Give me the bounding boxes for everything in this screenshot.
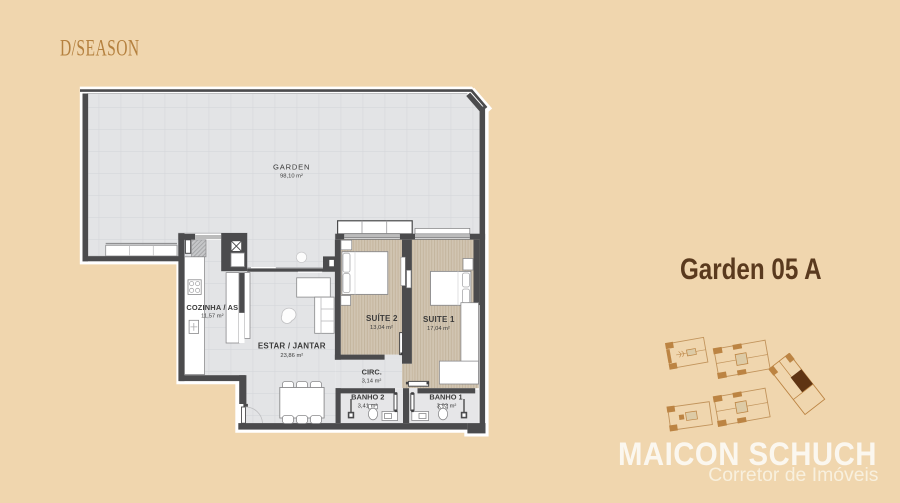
svg-text:13,04 m²: 13,04 m² — [370, 325, 393, 331]
svg-text:ESTAR / JANTAR: ESTAR / JANTAR — [258, 341, 326, 350]
svg-text:GARDEN: GARDEN — [273, 163, 310, 172]
svg-text:CIRC.: CIRC. — [362, 367, 382, 376]
svg-text:3,92 m²: 3,92 m² — [437, 403, 457, 409]
svg-text:BANHO 2: BANHO 2 — [351, 392, 384, 401]
svg-text:23,86 m²: 23,86 m² — [280, 353, 303, 359]
svg-text:BANHO 1: BANHO 1 — [429, 392, 462, 401]
svg-text:SUÍTE 2: SUÍTE 2 — [366, 314, 398, 323]
svg-text:3,41 m²: 3,41 m² — [358, 403, 378, 409]
svg-text:COZINHA / AS: COZINHA / AS — [186, 303, 238, 312]
svg-text:98,10 m²: 98,10 m² — [280, 174, 303, 180]
svg-text:3,14 m²: 3,14 m² — [362, 378, 382, 384]
svg-text:SUITE 1: SUITE 1 — [423, 315, 455, 324]
svg-text:17,04 m²: 17,04 m² — [427, 326, 450, 332]
svg-text:11,57 m²: 11,57 m² — [201, 314, 224, 320]
